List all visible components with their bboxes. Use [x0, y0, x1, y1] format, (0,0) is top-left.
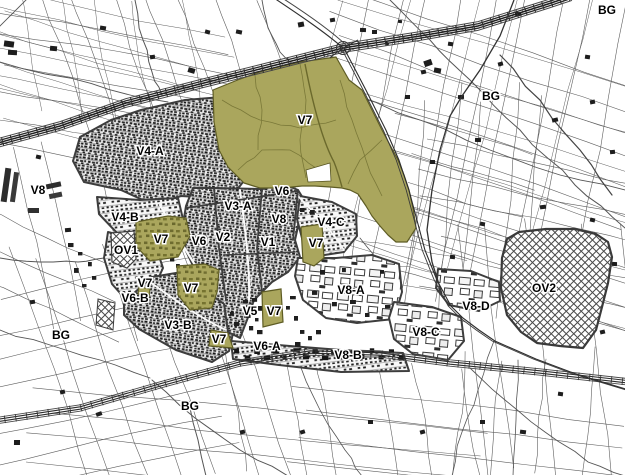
svg-text:V3-A: V3-A: [224, 199, 252, 213]
svg-text:V7: V7: [184, 281, 199, 295]
svg-text:V3-B: V3-B: [164, 318, 192, 332]
svg-text:V7: V7: [267, 304, 282, 318]
svg-text:V7: V7: [298, 113, 313, 127]
svg-text:BG: BG: [52, 328, 70, 342]
svg-text:V7: V7: [138, 276, 153, 290]
svg-text:V4-C: V4-C: [317, 215, 345, 229]
svg-text:V7: V7: [309, 236, 324, 250]
svg-text:V7: V7: [212, 332, 227, 346]
svg-text:V4-A: V4-A: [136, 144, 164, 158]
svg-text:V6-A: V6-A: [253, 339, 281, 353]
svg-text:V6: V6: [192, 234, 207, 248]
svg-text:V6-B: V6-B: [121, 291, 149, 305]
svg-text:OV2: OV2: [532, 281, 556, 295]
svg-text:OV1: OV1: [114, 243, 138, 257]
svg-text:V7: V7: [154, 232, 169, 246]
svg-text:BG: BG: [598, 3, 616, 17]
svg-text:V8: V8: [31, 183, 46, 197]
svg-text:V8-B: V8-B: [334, 348, 362, 362]
svg-text:V8-D: V8-D: [462, 299, 490, 313]
svg-text:V8-A: V8-A: [337, 283, 365, 297]
svg-text:V8-C: V8-C: [412, 325, 440, 339]
svg-text:V4-B: V4-B: [111, 210, 139, 224]
svg-text:V8: V8: [272, 212, 287, 226]
svg-text:V2: V2: [216, 230, 231, 244]
svg-text:BG: BG: [181, 399, 199, 413]
svg-text:BG: BG: [482, 89, 500, 103]
svg-text:V1: V1: [261, 235, 276, 249]
svg-text:V5: V5: [243, 304, 258, 318]
svg-text:V6: V6: [275, 184, 290, 198]
